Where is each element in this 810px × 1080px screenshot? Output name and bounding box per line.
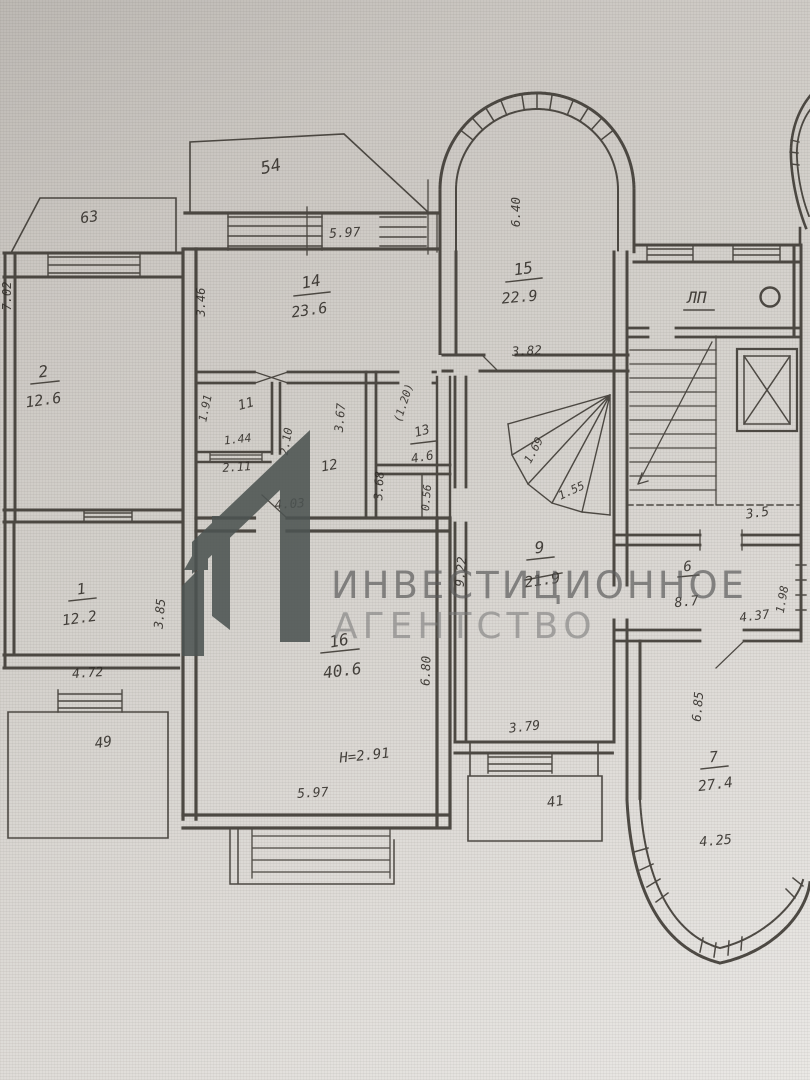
- dim-4-37: 4.37: [739, 606, 771, 625]
- balcony-49-label: 49: [94, 734, 114, 752]
- top-right-bay: [791, 96, 810, 245]
- dim-5-97-bottom: 5.97: [297, 785, 329, 802]
- ceiling-height-note: Н=2.91: [338, 745, 391, 766]
- wall-room14-bottom: [196, 372, 437, 383]
- corridor13-wall: [437, 377, 450, 520]
- room-7-number: 7: [708, 748, 719, 767]
- elevator-shaft: [737, 349, 797, 431]
- dim-6-40: 6.40: [508, 197, 523, 227]
- dim-6-80: 6.80: [417, 656, 433, 687]
- lp-room-bottom-wall: [627, 328, 801, 337]
- room-1-area: 12.2: [61, 609, 98, 630]
- dim-4-72: 4.72: [72, 665, 104, 682]
- outer-wall-right: [794, 245, 801, 641]
- balcony-63-label: 63: [79, 207, 99, 227]
- balcony-54-label: 54: [259, 155, 283, 179]
- staircase: [630, 336, 716, 505]
- room-7-area: 27.4: [697, 775, 734, 795]
- corridor-wall: [614, 535, 801, 545]
- room-13-number: 13: [413, 422, 432, 441]
- room1-window: [58, 690, 122, 712]
- balcony-54-outline: [190, 134, 428, 250]
- room6-bottom-wall: [614, 630, 801, 641]
- dim-9-22: 9.22: [452, 556, 470, 587]
- room-14-number: 14: [300, 271, 322, 293]
- dim-3-46: 3.46: [194, 288, 208, 318]
- room-15-area: 22.9: [501, 286, 539, 307]
- room-6-number: 6: [683, 559, 693, 576]
- plan-labels: 54 5.97 63 7.02 3.46 14 23.6 15 22.9 6.4…: [0, 155, 791, 850]
- dim-1-98: 1.98: [773, 584, 792, 614]
- room-6-area: 8.7: [674, 593, 700, 611]
- room-13-area: 4.6: [410, 447, 435, 466]
- dim-1-91: 1.91: [195, 393, 214, 423]
- scanned-floor-plan-photo: 54 5.97 63 7.02 3.46 14 23.6 15 22.9 6.4…: [0, 0, 810, 1080]
- room-2-number: 2: [37, 361, 49, 381]
- door-swing-room7: [716, 641, 744, 668]
- dim-1-20: (1.20): [391, 382, 416, 424]
- door-mark-room12: [255, 372, 288, 383]
- dim-0-56: 0.56: [419, 484, 434, 512]
- dim-3-82: 3.82: [510, 342, 542, 359]
- door-swing-room15: [482, 355, 498, 371]
- column-circle: [761, 288, 780, 307]
- dim-3-79: 3.79: [507, 718, 541, 736]
- floor-plan-drawing: 54 5.97 63 7.02 3.46 14 23.6 15 22.9 6.4…: [0, 0, 810, 1080]
- dim-3-67: 3.67: [332, 402, 349, 434]
- room2-window: [48, 253, 140, 277]
- logo-stem: [212, 516, 230, 630]
- room-1-number: 1: [76, 580, 87, 599]
- stairwell-separation-wall: [614, 252, 627, 742]
- room16-loggia: [230, 828, 394, 884]
- dim-3-68: 3.68: [371, 471, 387, 502]
- dim-6-85: 6.85: [689, 691, 707, 722]
- room9-window: [488, 753, 552, 773]
- logo-foot: [182, 564, 204, 656]
- agency-41-logo: [182, 424, 332, 668]
- corridor-door-ticks: [700, 530, 742, 550]
- room-9-area: 21.9: [523, 569, 561, 592]
- logo-bar: [280, 430, 310, 642]
- dim-1-69: 1.69: [521, 435, 546, 466]
- room1-door-hatch: [84, 510, 132, 522]
- room9-bottom-wall: [455, 742, 614, 753]
- outer-wall-top: [185, 213, 437, 249]
- dim-5-97-top: 5.97: [329, 225, 361, 242]
- balcony-49-outline: [8, 712, 168, 838]
- room-11-number: 11: [236, 394, 256, 414]
- dim-3-5: 3.5: [744, 504, 771, 522]
- stairwell-top-wall: [634, 245, 801, 262]
- room7-bay-windows: [634, 848, 803, 957]
- room15-arch-windows: [461, 93, 614, 140]
- dim-3-85: 3.85: [151, 598, 169, 630]
- room15-arch: [440, 93, 634, 252]
- room-9-number: 9: [534, 538, 545, 558]
- stairwell-lp-label: ЛП: [685, 288, 707, 307]
- dim-1-55: 1.55: [556, 478, 587, 502]
- dim-7-02: 7.02: [0, 282, 14, 311]
- stairwell-windows: [647, 245, 780, 262]
- room-14-area: 23.6: [290, 299, 328, 322]
- room-15-number: 15: [512, 258, 534, 279]
- balcony-41-label: 41: [546, 793, 565, 811]
- dim-4-25: 4.25: [699, 832, 733, 851]
- room7-bay: [627, 641, 810, 963]
- room-2-area: 12.6: [24, 389, 62, 412]
- room1-walls: [4, 510, 183, 668]
